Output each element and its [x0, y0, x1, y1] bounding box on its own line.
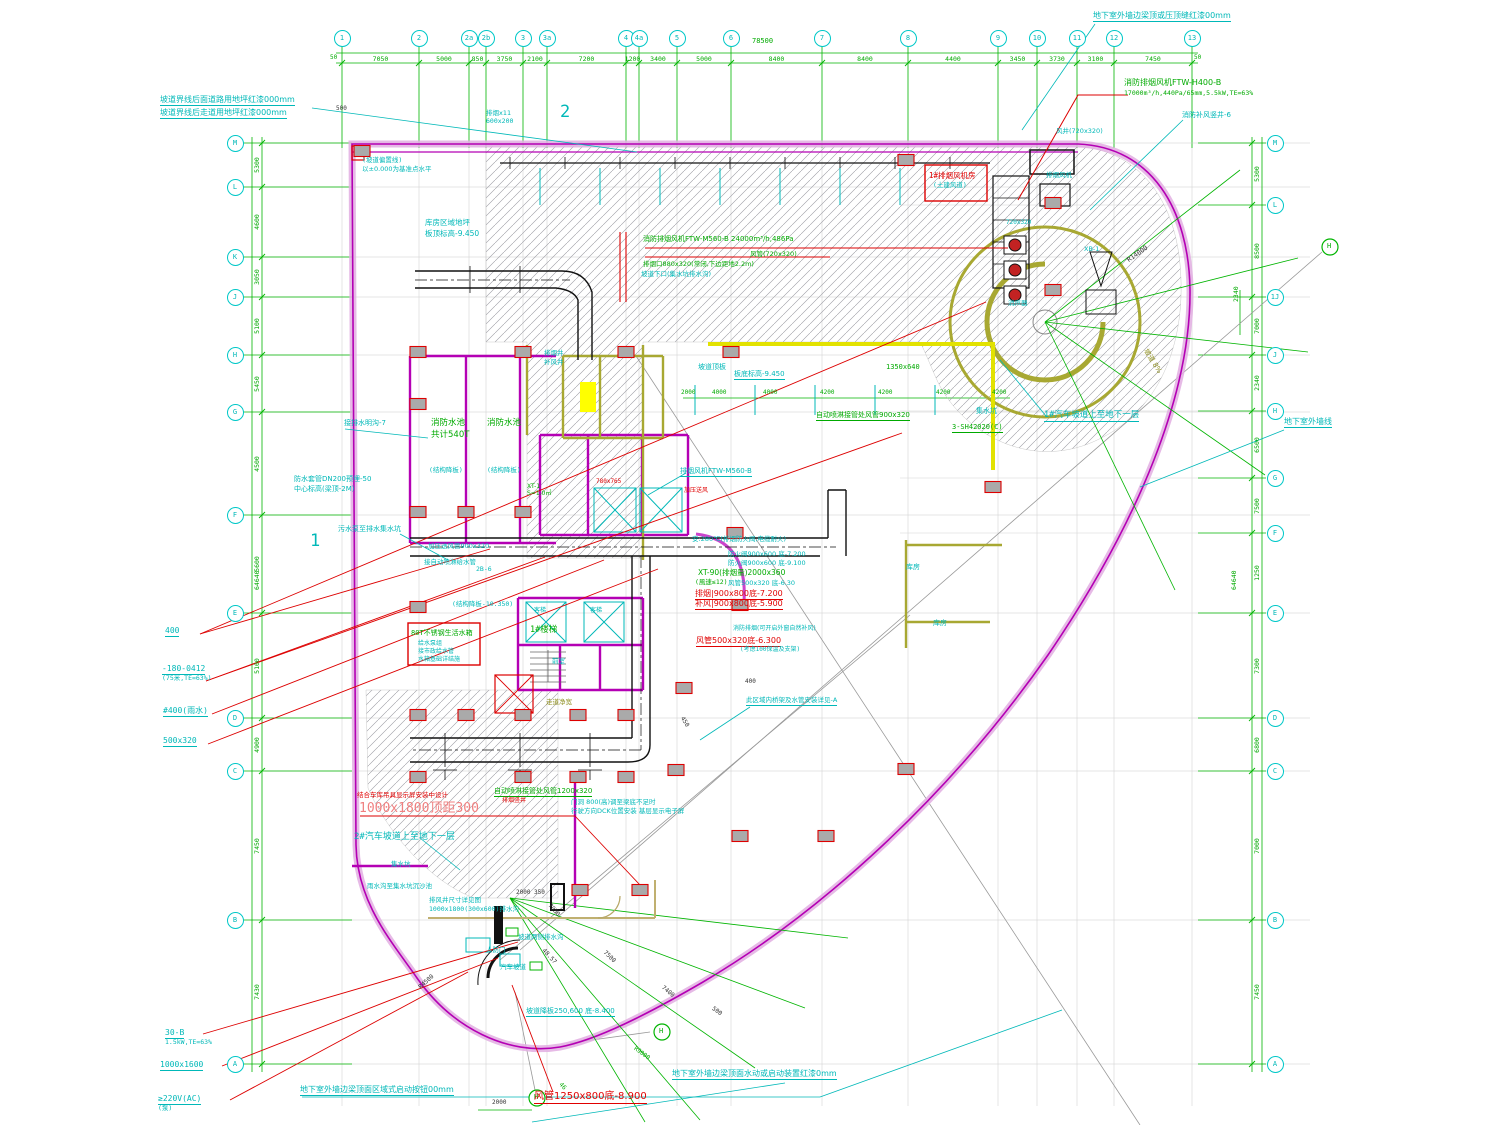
- annotation-text: 2000: [681, 390, 695, 396]
- grid-bubble: E: [1267, 605, 1284, 622]
- annotation-text: (结构降板): [429, 467, 463, 474]
- grid-bubble: D: [227, 710, 244, 727]
- dimension-label: 7050: [373, 55, 389, 63]
- annotation-text: 排烟竖井: [502, 798, 526, 804]
- annotation-text: 7050: [547, 903, 561, 918]
- annotation-text: #400(雨水): [163, 707, 208, 717]
- annotation-text: S=1.0㎡: [527, 491, 551, 497]
- grid-bubble: B: [227, 912, 244, 929]
- grid-bubble: B: [1267, 912, 1284, 929]
- annotation-text: 2340: [1233, 286, 1240, 302]
- annotation-text: 排风井尺寸详见图: [429, 897, 481, 904]
- annotation-text: 48.57: [541, 948, 558, 965]
- grid-bubble: 9: [990, 30, 1007, 47]
- annotation-text: 自动喷淋接管处风管1200x320: [494, 788, 592, 797]
- dimension-label: 7000: [1253, 318, 1261, 334]
- annotation-text: 排烟风机: [1046, 172, 1072, 179]
- annotation-text: (泵): [158, 1105, 172, 1112]
- dimension-label: 3450: [1010, 55, 1026, 63]
- annotation-text: 自动喷淋接管处风管900x320: [816, 412, 910, 421]
- annotation-text: 64640: [254, 570, 261, 590]
- annotation-text: 风管500x320 底-6.30: [728, 580, 795, 587]
- grid-bubble: L: [1267, 197, 1284, 214]
- annotation-text: 门洞 800(高)调至梁底不足时: [571, 799, 656, 806]
- dimension-label: 7500: [1253, 498, 1261, 514]
- dimension-label: 7300: [1253, 658, 1261, 674]
- annotation-text: 1350x640: [886, 364, 920, 371]
- annotation-text: 500x320: [163, 737, 197, 747]
- annotation-text: 500: [710, 1006, 722, 1017]
- annotation-text: 消声器: [1008, 300, 1028, 307]
- annotation-text: 400: [745, 679, 756, 685]
- annotation-text: 库房区域地坪: [425, 219, 470, 227]
- grid-bubble: K: [227, 249, 244, 266]
- annotation-text: XT-90(排烟量)2000x360: [698, 569, 785, 577]
- grid-bubble: 2a: [461, 30, 478, 47]
- grid-bubble: C: [1267, 763, 1284, 780]
- annotation-text: 4200: [820, 390, 834, 396]
- annotation-text: 坡道降板250,600 底-8.400: [526, 1008, 615, 1017]
- annotation-text: 消防水池: [487, 419, 521, 428]
- annotation-text: 板底标高-9.450: [734, 371, 785, 380]
- annotation-text: 前室: [552, 658, 565, 665]
- annotation-text: 库房: [906, 564, 920, 571]
- dimension-label: 7430: [253, 984, 261, 1000]
- dimension-label: 3050: [253, 269, 261, 285]
- dimension-label: 4600: [253, 214, 261, 230]
- dimension-label: 3100: [1088, 55, 1104, 63]
- dimension-label: 4400: [945, 55, 961, 63]
- grid-bubble: 13: [1184, 30, 1201, 47]
- dimension-label: 7450: [253, 838, 261, 854]
- annotation-text: 坡道 8%: [1142, 348, 1162, 375]
- annotation-text: 集水坑: [976, 408, 997, 415]
- annotation-text: 人防门: [486, 947, 506, 954]
- annotation-text: 防火阀900x600 底-7.200: [728, 551, 806, 558]
- dimension-label: 5000: [436, 55, 452, 63]
- grid-bubble: 10: [1029, 30, 1046, 47]
- annotation-text: 1#排烟风机房: [929, 172, 976, 180]
- annotation-text: 720x320: [1006, 220, 1031, 226]
- grid-bubble: 6: [723, 30, 740, 47]
- annotation-text: 消防水池: [431, 419, 465, 428]
- annotation-text: 1#楼梯: [530, 626, 557, 635]
- grid-bubble: H: [1267, 403, 1284, 420]
- annotation-text: 走道净宽: [546, 699, 572, 706]
- annotation-text: 水箱基础详结施: [418, 657, 460, 663]
- annotation-text: 4000: [712, 390, 726, 396]
- grid-bubble: E: [227, 605, 244, 622]
- grid-bubble: 2b: [478, 30, 495, 47]
- annotation-text: 64640: [1231, 570, 1238, 590]
- annotation-text: 汽车坡道: [500, 964, 526, 971]
- grid-bubble: M: [1267, 135, 1284, 152]
- dimension-label: 1250: [1253, 565, 1261, 581]
- annotation-text: 以±0.000为基准点水平: [362, 166, 432, 173]
- annotation-text: (75米,TE=63%): [162, 675, 212, 682]
- annotation-text: 客梯: [590, 608, 602, 614]
- annotation-text: 坡道界线后面道路用地坪红漆000mm: [160, 96, 295, 106]
- annotation-text: 3-SH42020(C): [952, 424, 1003, 433]
- annotation-text: (坡道偏置线): [362, 157, 402, 164]
- annotation-text: 加压送风: [684, 488, 708, 494]
- annotation-text: 消防排烟(可开启外窗自然补风): [733, 626, 816, 632]
- annotation-text: 坡道顶板: [698, 364, 726, 371]
- annotation-text: 风管(720x320): [750, 251, 797, 258]
- grid-bubble: C: [227, 763, 244, 780]
- annotation-text: 给水泵组: [418, 641, 442, 647]
- annotation-text: 7500: [602, 950, 617, 964]
- annotation-text: 1: [310, 533, 320, 550]
- annotation-text: 共计540T: [431, 431, 469, 440]
- grid-bubble: 12: [1106, 30, 1123, 47]
- grid-bubble: 4a: [631, 30, 648, 47]
- grid-bubble: F: [227, 507, 244, 524]
- annotation-text: (土建风道): [933, 182, 967, 189]
- annotation-text: 行驶方向DCK位置安装 基层显示电子屏: [571, 808, 684, 815]
- annotation-text: 400: [165, 627, 179, 637]
- grid-bubble: 7: [814, 30, 831, 47]
- grid-bubble: 1: [334, 30, 351, 47]
- annotation-text: (風速≤12): [695, 579, 728, 586]
- dimension-label: 850: [472, 55, 484, 63]
- grid-bubble: G: [1267, 470, 1284, 487]
- annotation-text: 排烟风机FTW-M560-B: [680, 468, 752, 477]
- annotation-text: 消防排烟风机FTW-H400-B: [1124, 79, 1221, 87]
- annotation-text: 结合车库吊具显示屏安装中设计: [357, 792, 448, 799]
- annotation-text: 2000: [492, 1100, 506, 1106]
- grid-bubble: 3: [515, 30, 532, 47]
- annotation-text: R14000: [1126, 245, 1149, 264]
- annotation-text: R9000: [632, 1046, 650, 1061]
- annotation-text: 600x200: [486, 118, 513, 125]
- annotation-text: 坡道下口(集水坑排水沟): [641, 271, 711, 278]
- annotation-text: 7400: [660, 985, 675, 999]
- grid-bubble: 11: [1069, 30, 1086, 47]
- annotation-text: 地下室外墙边梁顶或压顶缝红漆00mm: [1093, 12, 1231, 22]
- annotation-text: 接排水明沟-7: [344, 420, 386, 427]
- annotation-text: (结构降板): [487, 467, 521, 474]
- grid-bubble: A: [1267, 1056, 1284, 1073]
- dimension-label: 5100: [253, 658, 261, 674]
- annotation-text: 板顶标高-9.450: [425, 230, 479, 238]
- dimension-label: 4900: [253, 737, 261, 753]
- annotation-text: 1000x1600: [160, 1061, 203, 1071]
- grid-bubble: F: [1267, 525, 1284, 542]
- annotation-text: 80T不锈钢生活水箱: [411, 630, 473, 637]
- dimension-label: 7000: [1253, 838, 1261, 854]
- grid-bubble: 8: [900, 30, 917, 47]
- grid-bubble: G: [227, 404, 244, 421]
- annotation-text: 78500: [752, 38, 773, 45]
- grid-bubble: 5: [669, 30, 686, 47]
- annotation-text: 排烟口880x320(常闭,下边距地2.2m): [643, 261, 754, 268]
- dimension-label: 5300: [1253, 166, 1261, 182]
- dimension-label: 3750: [497, 55, 513, 63]
- annotation-text: 污水泵至排水集水坑: [338, 526, 401, 533]
- annotation-text: 17000m³/h,440Pa/65mm,5.5kW,TE=63%: [1124, 90, 1253, 97]
- annotation-text: 接自动喷淋给水管: [424, 559, 476, 566]
- dimension-label: 5100: [253, 318, 261, 334]
- annotation-text: 1000x1800(300x600)排水沟: [429, 906, 519, 913]
- annotation-text: 风管1250x800底-8.900: [534, 1092, 647, 1104]
- annotation-text: 防火阀900x600 底-9.100: [728, 560, 806, 567]
- annotation-text: 2B-6: [476, 566, 492, 573]
- dimension-label: 4500: [253, 456, 261, 472]
- annotation-text: 46: [558, 1082, 567, 1091]
- dimension-label: 5300: [253, 157, 261, 173]
- cad-floor-plan: 17050250002a8502b3750321003a7200412004a3…: [0, 0, 1500, 1125]
- annotation-text: 雨水沟至集水坑沉沙池: [367, 883, 432, 890]
- grid-bubble: 2: [411, 30, 428, 47]
- annotation-text: 450: [679, 716, 690, 728]
- annotation-text: 补风井: [544, 359, 564, 366]
- annotation-text: 加压送风管900x320: [428, 543, 489, 550]
- annotation-text: 50: [330, 55, 337, 61]
- annotation-text: 地下室外墙线: [1284, 418, 1332, 428]
- annotation-text: 2: [560, 104, 570, 121]
- annotation-text: 客梯: [534, 608, 546, 614]
- grid-bubble: A: [227, 1056, 244, 1073]
- annotation-text: 2#汽车坡道上至地下一层: [354, 833, 455, 842]
- dimension-label: 7450: [1253, 984, 1261, 1000]
- annotation-text: R4500: [418, 974, 435, 991]
- annotation-text: (结构降板-10.350): [452, 601, 513, 608]
- annotation-text: 中心标高(梁顶-2M): [294, 486, 354, 493]
- annotation-text: 防水套管DN200预埋-50: [294, 476, 371, 483]
- annotation-text: 4200: [992, 390, 1006, 396]
- annotation-text: 排烟井: [544, 350, 564, 357]
- annotation-text: 集水坑: [391, 861, 411, 868]
- annotation-text: 4200: [878, 390, 892, 396]
- annotation-text: (考虑100保温及支架): [740, 647, 800, 653]
- dimension-label: 3400: [650, 55, 666, 63]
- dimension-label: 6500: [1253, 437, 1261, 453]
- grid-bubble: 3a: [539, 30, 556, 47]
- annotation-text: 此区域内桥架及水管安装详见-A: [746, 697, 837, 706]
- dimension-label: 8400: [857, 55, 873, 63]
- grid-bubble: H: [227, 347, 244, 364]
- annotation-text: 排烟x11: [486, 110, 511, 117]
- annotation-text: 780x765: [596, 479, 621, 485]
- annotation-text: XB-1: [1084, 246, 1099, 253]
- annotation-layer: 17050250002a8502b3750321003a7200412004a3…: [0, 0, 1500, 1125]
- dimension-label: 5450: [253, 376, 261, 392]
- dimension-label: 3730: [1049, 55, 1065, 63]
- dimension-label: 2340: [1253, 375, 1261, 391]
- grid-bubble: H: [1327, 243, 1331, 250]
- annotation-text: 4000: [763, 390, 777, 396]
- annotation-text: 1000x1800顶距300: [359, 802, 479, 815]
- grid-bubble: J: [1267, 347, 1284, 364]
- annotation-text: 地下室外墙边梁顶面水动或启动装置红漆0mm: [672, 1070, 837, 1080]
- annotation-text: 安:280℃(排烟防火阀,电缆耐火): [692, 536, 786, 543]
- dimension-label: 5000: [696, 55, 712, 63]
- annotation-text: 坡道两侧排水沟: [518, 934, 564, 941]
- dimension-label: 2100: [527, 55, 543, 63]
- annotation-text: 接市政给水管: [418, 649, 454, 655]
- annotation-text: 补风|900x800底-5.900: [695, 600, 783, 610]
- annotation-text: 风井(720x320): [1056, 128, 1103, 135]
- dimension-label: 7200: [579, 55, 595, 63]
- annotation-text: 500: [336, 106, 347, 112]
- dimension-label: 6800: [1253, 737, 1261, 753]
- annotation-text: 地下室外墙边梁顶面区域式启动按钮00mm: [300, 1086, 454, 1096]
- annotation-text: 消防排烟风机FTW-M560-B 24000m³/h,486Pa: [643, 236, 794, 243]
- dimension-label: 7450: [1145, 55, 1161, 63]
- grid-bubble: H: [659, 1028, 663, 1035]
- grid-bubble: 1J: [1267, 289, 1284, 306]
- annotation-text: 4200: [936, 390, 950, 396]
- annotation-text: 坡道界线后走道用地坪红漆000mm: [160, 109, 287, 119]
- grid-bubble: J: [227, 289, 244, 306]
- dimension-label: 8400: [769, 55, 785, 63]
- dimension-label: 1200: [625, 55, 641, 63]
- annotation-text: 1.5kW,TE=63%: [165, 1039, 212, 1046]
- annotation-text: 50: [1194, 55, 1201, 61]
- annotation-text: 2000 350: [516, 890, 545, 896]
- grid-bubble: M: [227, 135, 244, 152]
- dimension-label: 8500: [1253, 243, 1261, 259]
- annotation-text: 库房: [933, 620, 947, 627]
- annotation-text: 1#汽车坡道上至地下一层: [1044, 411, 1139, 422]
- grid-bubble: L: [227, 179, 244, 196]
- grid-bubble: D: [1267, 710, 1284, 727]
- annotation-text: 消防补风竖井-6: [1182, 112, 1231, 119]
